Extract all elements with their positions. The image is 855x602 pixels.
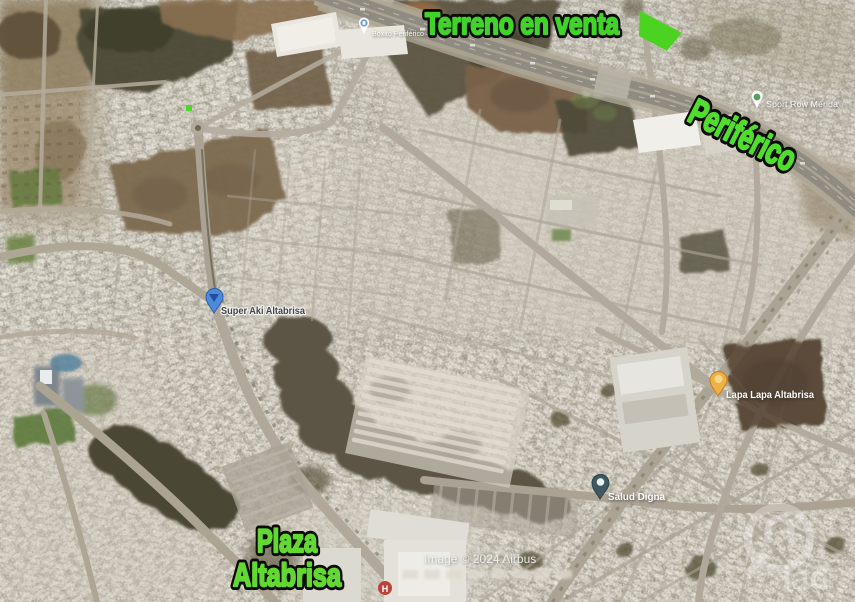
svg-text:Sport Row Mérida: Sport Row Mérida [766, 99, 838, 109]
svg-text:Boxito Periférico: Boxito Periférico [372, 29, 424, 38]
svg-text:Altabrisa: Altabrisa [233, 557, 341, 593]
svg-text:Super Aki Altabrisa: Super Aki Altabrisa [221, 306, 305, 317]
svg-text:Plaza: Plaza [257, 523, 317, 559]
svg-text:Image © 2024 Airbus: Image © 2024 Airbus [424, 552, 536, 566]
svg-text:H: H [382, 584, 389, 594]
svg-text:Salud Digna: Salud Digna [608, 491, 665, 503]
svg-text:iad: iad [782, 559, 830, 596]
svg-text:Terreno en venta: Terreno en venta [425, 6, 620, 41]
svg-text:Lapa Lapa Altabrisa: Lapa Lapa Altabrisa [726, 390, 814, 401]
